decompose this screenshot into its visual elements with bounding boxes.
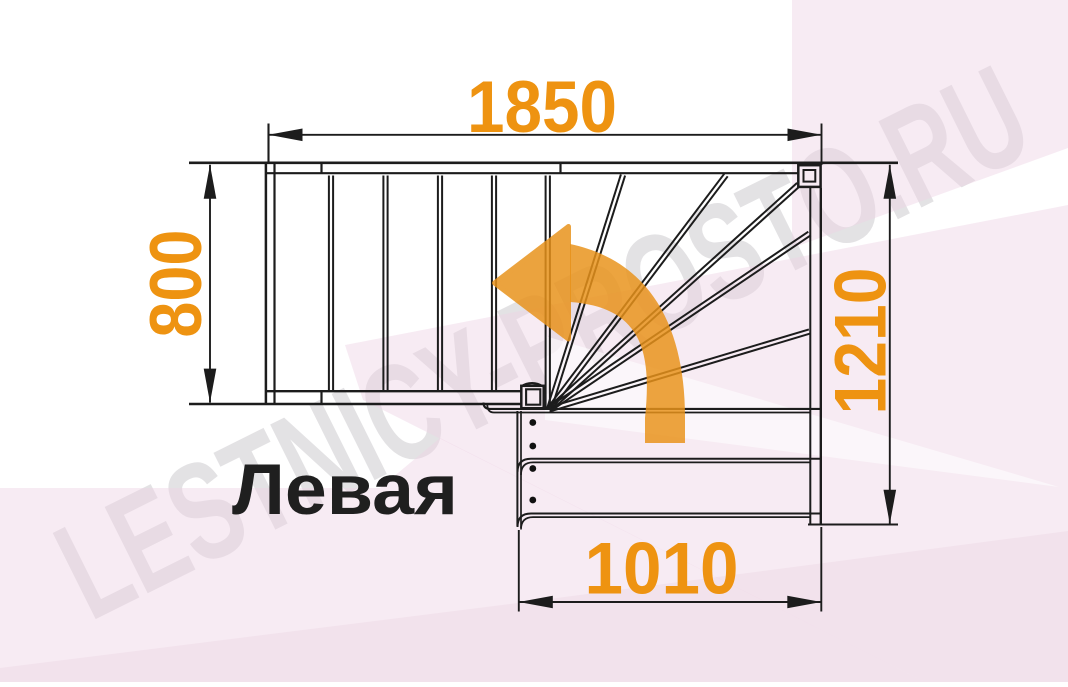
- svg-text:1850: 1850: [467, 67, 617, 148]
- svg-text:800: 800: [136, 230, 217, 338]
- svg-text:Левая: Левая: [232, 451, 458, 530]
- svg-text:1010: 1010: [585, 529, 739, 610]
- svg-text:1210: 1210: [821, 268, 902, 415]
